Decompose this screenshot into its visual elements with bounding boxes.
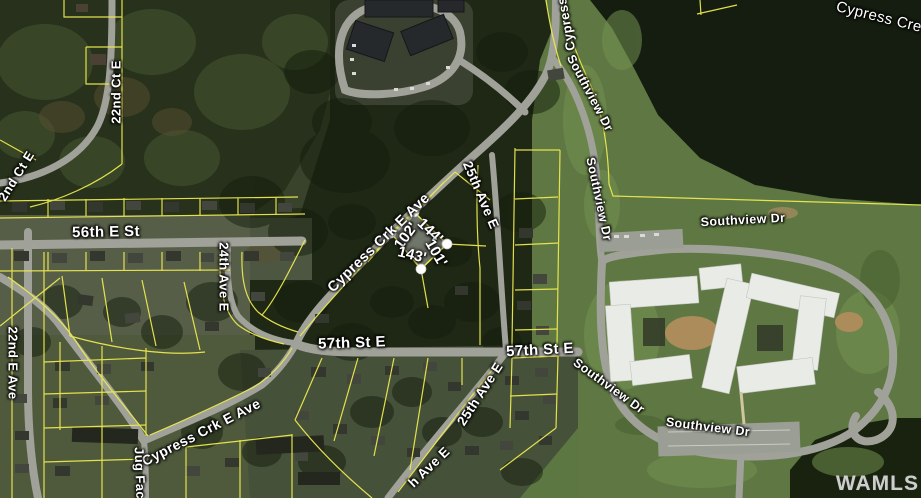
satellite-map[interactable]: 22nd Ct E 2nd Ct E 56th E St 24th Ave E … [0,0,921,498]
map-artwork [0,0,921,498]
